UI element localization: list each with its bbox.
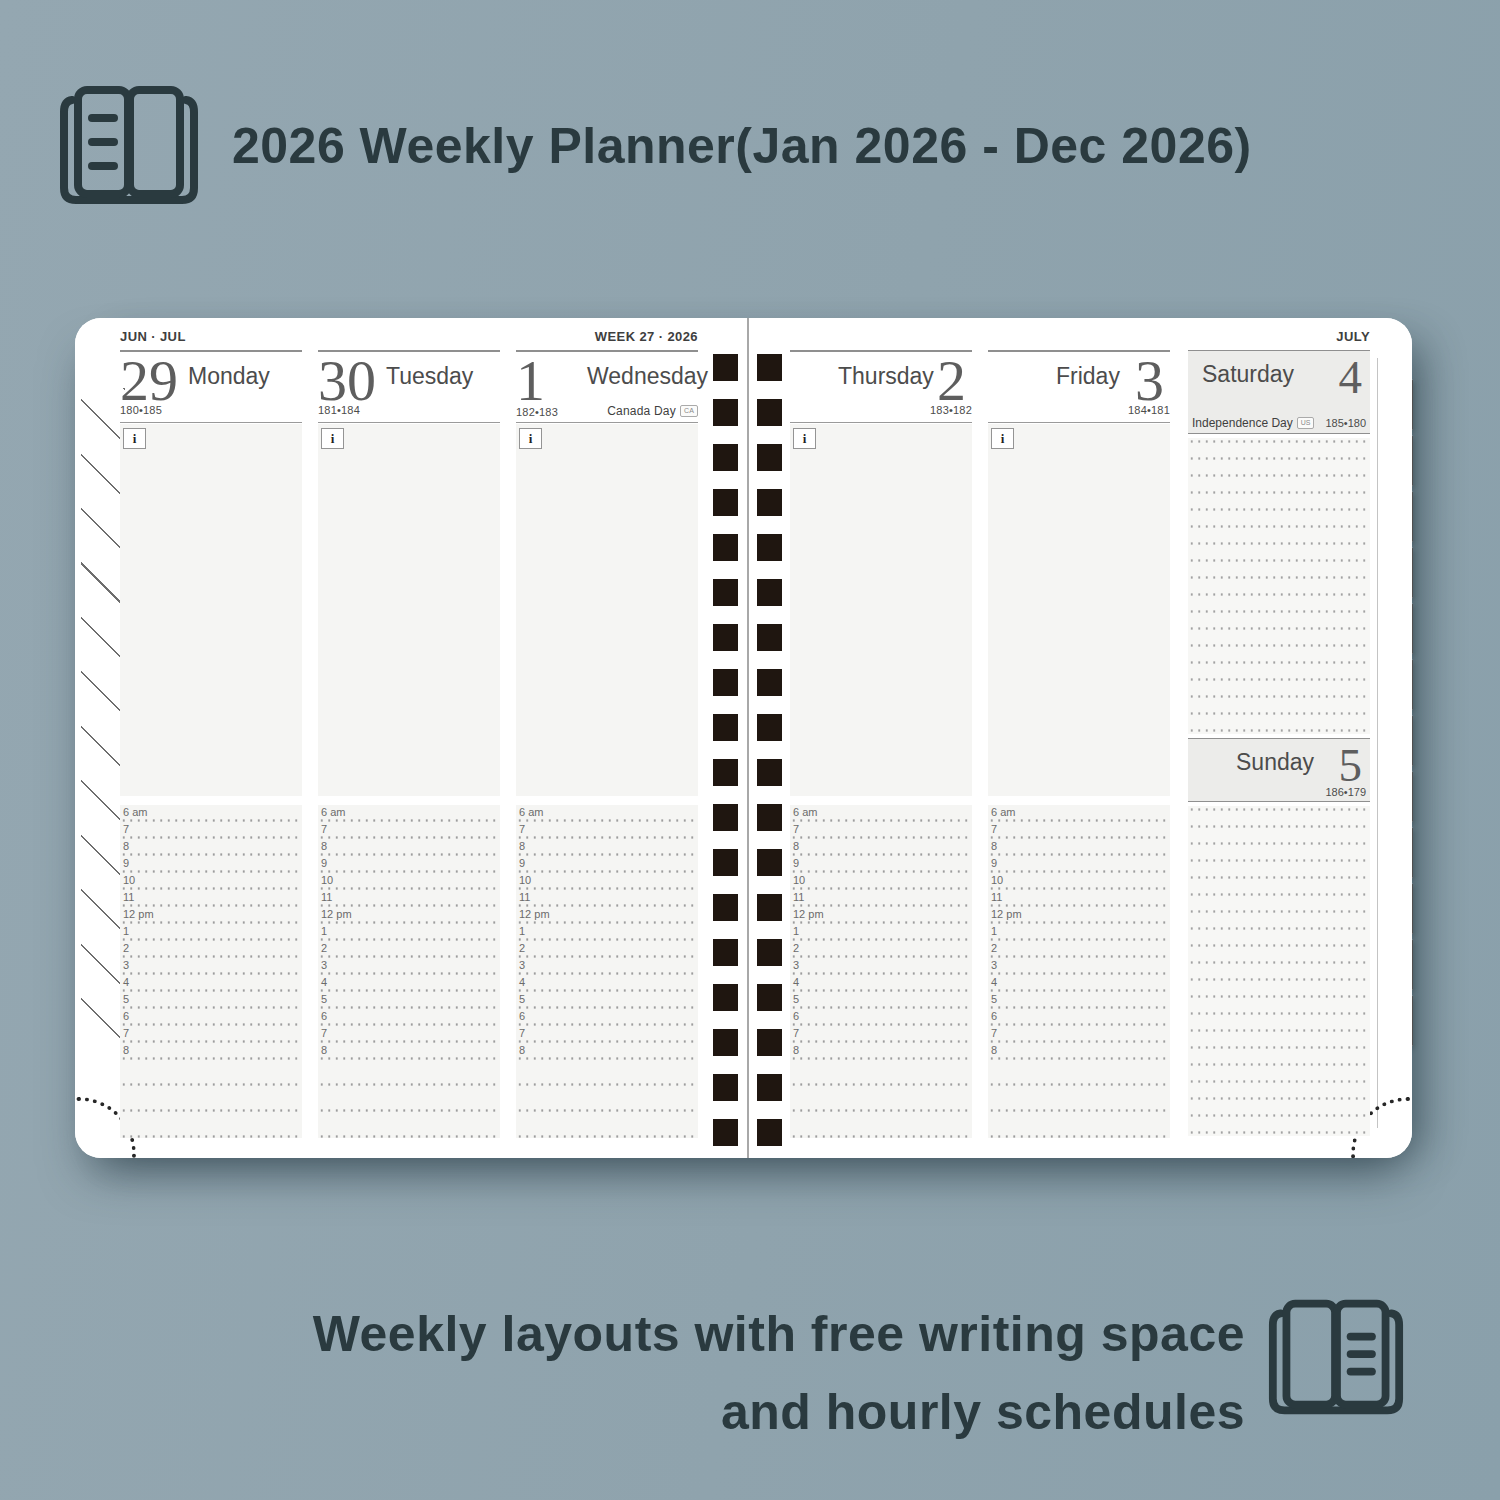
day-meta: 186•179 xyxy=(1188,786,1370,798)
day-of-year-value: 180•185 xyxy=(120,404,162,416)
caption-line-2: and hourly schedules xyxy=(313,1374,1245,1452)
hour-row: 4 xyxy=(988,975,1170,992)
day-of-year-value: 183•182 xyxy=(930,404,972,416)
open-planner-icon-mirrored xyxy=(1267,1290,1405,1430)
extra-row xyxy=(120,1086,302,1112)
hour-row: 6 xyxy=(790,1009,972,1026)
hour-row: 9 xyxy=(318,856,500,873)
extra-row xyxy=(790,1060,972,1086)
hour-row: 5 xyxy=(790,992,972,1009)
day-number: 3 xyxy=(1135,354,1164,407)
extra-row xyxy=(516,1086,698,1112)
week-label: WEEK 27 · 2026 xyxy=(516,329,698,344)
info-icon: i xyxy=(123,428,146,449)
hour-row: 3 xyxy=(318,958,500,975)
country-badge: CA xyxy=(680,405,698,417)
hour-row: 8 xyxy=(318,839,500,856)
extra-row xyxy=(988,1112,1170,1138)
day-name: Tuesday xyxy=(386,363,473,390)
divider xyxy=(318,422,500,423)
hour-row: 2 xyxy=(988,941,1170,958)
page-edge-hatching xyxy=(81,388,125,1052)
day-of-year-value: 185•180 xyxy=(1325,417,1366,429)
divider xyxy=(516,422,698,423)
extra-row xyxy=(790,1112,972,1138)
hour-row: 9 xyxy=(516,856,698,873)
day-heading: Friday 3 xyxy=(988,354,1170,407)
hour-row: 11 xyxy=(790,890,972,907)
extra-row xyxy=(988,1086,1170,1112)
hour-row: 12 pm xyxy=(516,907,698,924)
hour-row: 3 xyxy=(988,958,1170,975)
day-number: 30 xyxy=(318,354,376,407)
top-sheet-edge xyxy=(1377,358,1378,1128)
hour-row: 6 xyxy=(516,1009,698,1026)
day-of-year: 181•184 xyxy=(318,404,500,416)
hour-row: 6 xyxy=(120,1009,302,1026)
hour-row: 6 am xyxy=(516,805,698,822)
hour-row: 5 xyxy=(516,992,698,1009)
day-number: 1 xyxy=(516,354,545,407)
sunday-block: Sunday 5 186•179 xyxy=(1188,738,1370,802)
hour-row: 3 xyxy=(516,958,698,975)
divider xyxy=(120,422,302,423)
hour-row: 7 xyxy=(516,1026,698,1043)
day-name: Sunday xyxy=(1236,749,1314,776)
extra-row xyxy=(318,1060,500,1086)
hour-row: 8 xyxy=(988,839,1170,856)
day-heading: 29 Monday xyxy=(120,354,302,407)
free-writing-space: i xyxy=(318,424,500,796)
hour-row: 6 am xyxy=(790,805,972,822)
hour-row: 1 xyxy=(120,924,302,941)
hour-row: 6 am xyxy=(988,805,1170,822)
hour-row: 6 am xyxy=(318,805,500,822)
hour-row: 10 xyxy=(516,873,698,890)
extra-row xyxy=(988,1060,1170,1086)
day-heading: 30 Tuesday xyxy=(318,354,500,407)
hourly-schedule: 6 am789101112 pm12345678 xyxy=(790,805,972,1138)
holiday-label: Independence Day US xyxy=(1192,416,1314,430)
page-header: 2026 Weekly Planner(Jan 2026 - Dec 2026) xyxy=(58,82,1252,210)
day-column-wednesday: WEEK 27 · 2026 1 Wednesday 182•183 Canad… xyxy=(516,318,698,1158)
hour-row: 2 xyxy=(318,941,500,958)
info-icon: i xyxy=(321,428,344,449)
hour-row: 7 xyxy=(318,1026,500,1043)
hour-row: 7 xyxy=(120,1026,302,1043)
hour-row: 8 xyxy=(790,1043,972,1060)
hour-row: 11 xyxy=(516,890,698,907)
info-icon: i xyxy=(991,428,1014,449)
hour-row: 7 xyxy=(516,822,698,839)
day-number: 29 xyxy=(120,354,178,407)
day-name: Thursday xyxy=(838,363,934,390)
hour-row: 8 xyxy=(120,1043,302,1060)
hour-row: 7 xyxy=(988,1026,1170,1043)
day-number: 5 xyxy=(1339,742,1363,789)
month-range-label: JUN · JUL xyxy=(120,329,302,344)
planner-spread: JAN FEB MAR APR MAY JUN JUL AUG SEP OCT … xyxy=(75,318,1412,1158)
saturday-block: Saturday 4 Independence Day US 185•180 xyxy=(1188,350,1370,434)
day-meta: Independence Day US 185•180 xyxy=(1188,416,1370,430)
hour-row: 8 xyxy=(988,1043,1170,1060)
hourly-schedule: 6 am789101112 pm12345678 xyxy=(516,805,698,1138)
hour-row: 12 pm xyxy=(790,907,972,924)
day-of-year: 183•182 xyxy=(790,404,972,416)
hour-row: 8 xyxy=(516,1043,698,1060)
caption-line-1: Weekly layouts with free writing space xyxy=(313,1296,1245,1374)
day-heading: Thursday 2 xyxy=(790,354,972,407)
hour-row: 2 xyxy=(120,941,302,958)
hour-row: 1 xyxy=(318,924,500,941)
day-column-friday: Friday 3 184•181 i 6 am789101112 pm12345… xyxy=(988,318,1170,1158)
hour-row: 2 xyxy=(790,941,972,958)
hour-row: 2 xyxy=(516,941,698,958)
day-number: 2 xyxy=(937,354,966,407)
day-column-thursday: Thursday 2 183•182 i 6 am789101112 pm123… xyxy=(790,318,972,1158)
hour-row: 4 xyxy=(790,975,972,992)
hour-row: 10 xyxy=(120,873,302,890)
hour-row: 1 xyxy=(516,924,698,941)
day-column-tuesday: 30 Tuesday 181•184 i 6 am789101112 pm123… xyxy=(318,318,500,1158)
hour-row: 12 pm xyxy=(120,907,302,924)
extra-row xyxy=(516,1112,698,1138)
divider xyxy=(790,422,972,423)
day-of-year-value: 182•183 xyxy=(516,406,558,418)
divider xyxy=(988,422,1170,423)
day-name: Monday xyxy=(188,363,270,390)
hour-row: 10 xyxy=(988,873,1170,890)
day-number: 4 xyxy=(1339,354,1363,401)
day-name: Wednesday xyxy=(587,363,708,390)
holiday-name: Independence Day xyxy=(1192,416,1293,430)
extra-row xyxy=(120,1060,302,1086)
binding-holes-right xyxy=(757,354,782,1146)
extra-row xyxy=(318,1086,500,1112)
day-of-year-value: 184•181 xyxy=(1128,404,1170,416)
open-planner-icon xyxy=(58,82,200,210)
hourly-schedule: 6 am789101112 pm12345678 xyxy=(988,805,1170,1138)
free-writing-space: i xyxy=(120,424,302,796)
hour-row: 6 xyxy=(318,1009,500,1026)
hour-row: 9 xyxy=(120,856,302,873)
free-writing-space: i xyxy=(790,424,972,796)
country-badge: US xyxy=(1297,417,1315,429)
hour-row: 3 xyxy=(120,958,302,975)
page-title: 2026 Weekly Planner(Jan 2026 - Dec 2026) xyxy=(232,117,1252,175)
hour-row: 12 pm xyxy=(988,907,1170,924)
hour-row: 6 xyxy=(988,1009,1170,1026)
hour-row: 10 xyxy=(318,873,500,890)
page-gutter-line xyxy=(747,318,749,1158)
hour-row: 12 pm xyxy=(318,907,500,924)
hour-row: 7 xyxy=(988,822,1170,839)
day-name: Saturday xyxy=(1202,361,1294,388)
hour-row: 8 xyxy=(120,839,302,856)
hour-row: 4 xyxy=(120,975,302,992)
hour-row: 9 xyxy=(988,856,1170,873)
hour-row: 8 xyxy=(318,1043,500,1060)
hourly-schedule: 6 am789101112 pm12345678 xyxy=(318,805,500,1138)
binding-holes-left xyxy=(713,354,738,1146)
day-of-year-value: 181•184 xyxy=(318,404,360,416)
info-icon: i xyxy=(793,428,816,449)
hour-row: 11 xyxy=(318,890,500,907)
hour-row: 8 xyxy=(516,839,698,856)
hour-row: 5 xyxy=(988,992,1170,1009)
dotted-writing-area xyxy=(1188,438,1370,734)
hour-row: 1 xyxy=(790,924,972,941)
day-of-year: 182•183 Canada Day CA xyxy=(516,404,698,418)
hour-row: 4 xyxy=(318,975,500,992)
month-label: JULY xyxy=(1188,329,1370,344)
bottom-caption: Weekly layouts with free writing space a… xyxy=(313,1296,1245,1451)
hour-row: 1 xyxy=(988,924,1170,941)
hour-row: 4 xyxy=(516,975,698,992)
day-heading: 1 Wednesday xyxy=(516,354,698,407)
day-of-year: 184•181 xyxy=(988,404,1170,416)
hour-row: 9 xyxy=(790,856,972,873)
holiday-name: Canada Day xyxy=(607,404,676,418)
free-writing-space: i xyxy=(516,424,698,796)
extra-row xyxy=(318,1112,500,1138)
hour-row: 6 am xyxy=(120,805,302,822)
info-icon: i xyxy=(519,428,542,449)
hour-row: 7 xyxy=(120,822,302,839)
free-writing-space: i xyxy=(988,424,1170,796)
hour-row: 7 xyxy=(790,1026,972,1043)
hour-row: 11 xyxy=(120,890,302,907)
hour-row: 11 xyxy=(988,890,1170,907)
hourly-schedule: 6 am789101112 pm12345678 xyxy=(120,805,302,1138)
extra-row xyxy=(790,1086,972,1112)
hour-row: 5 xyxy=(318,992,500,1009)
holiday-label: Canada Day CA xyxy=(607,404,698,418)
hour-row: 7 xyxy=(318,822,500,839)
hour-row: 7 xyxy=(790,822,972,839)
day-of-year-value: 186•179 xyxy=(1325,786,1366,798)
day-of-year: 180•185 xyxy=(120,404,302,416)
day-name: Friday xyxy=(1056,363,1120,390)
hour-row: 5 xyxy=(120,992,302,1009)
hour-row: 8 xyxy=(790,839,972,856)
day-column-weekend: JULY Saturday 4 Independence Day US 185•… xyxy=(1188,318,1370,1158)
hour-row: 3 xyxy=(790,958,972,975)
day-column-monday: JUN · JUL 29 Monday 180•185 i 6 am789101… xyxy=(120,318,302,1158)
extra-row xyxy=(516,1060,698,1086)
dotted-writing-area xyxy=(1188,806,1370,1136)
extra-row xyxy=(120,1112,302,1138)
hour-row: 10 xyxy=(790,873,972,890)
